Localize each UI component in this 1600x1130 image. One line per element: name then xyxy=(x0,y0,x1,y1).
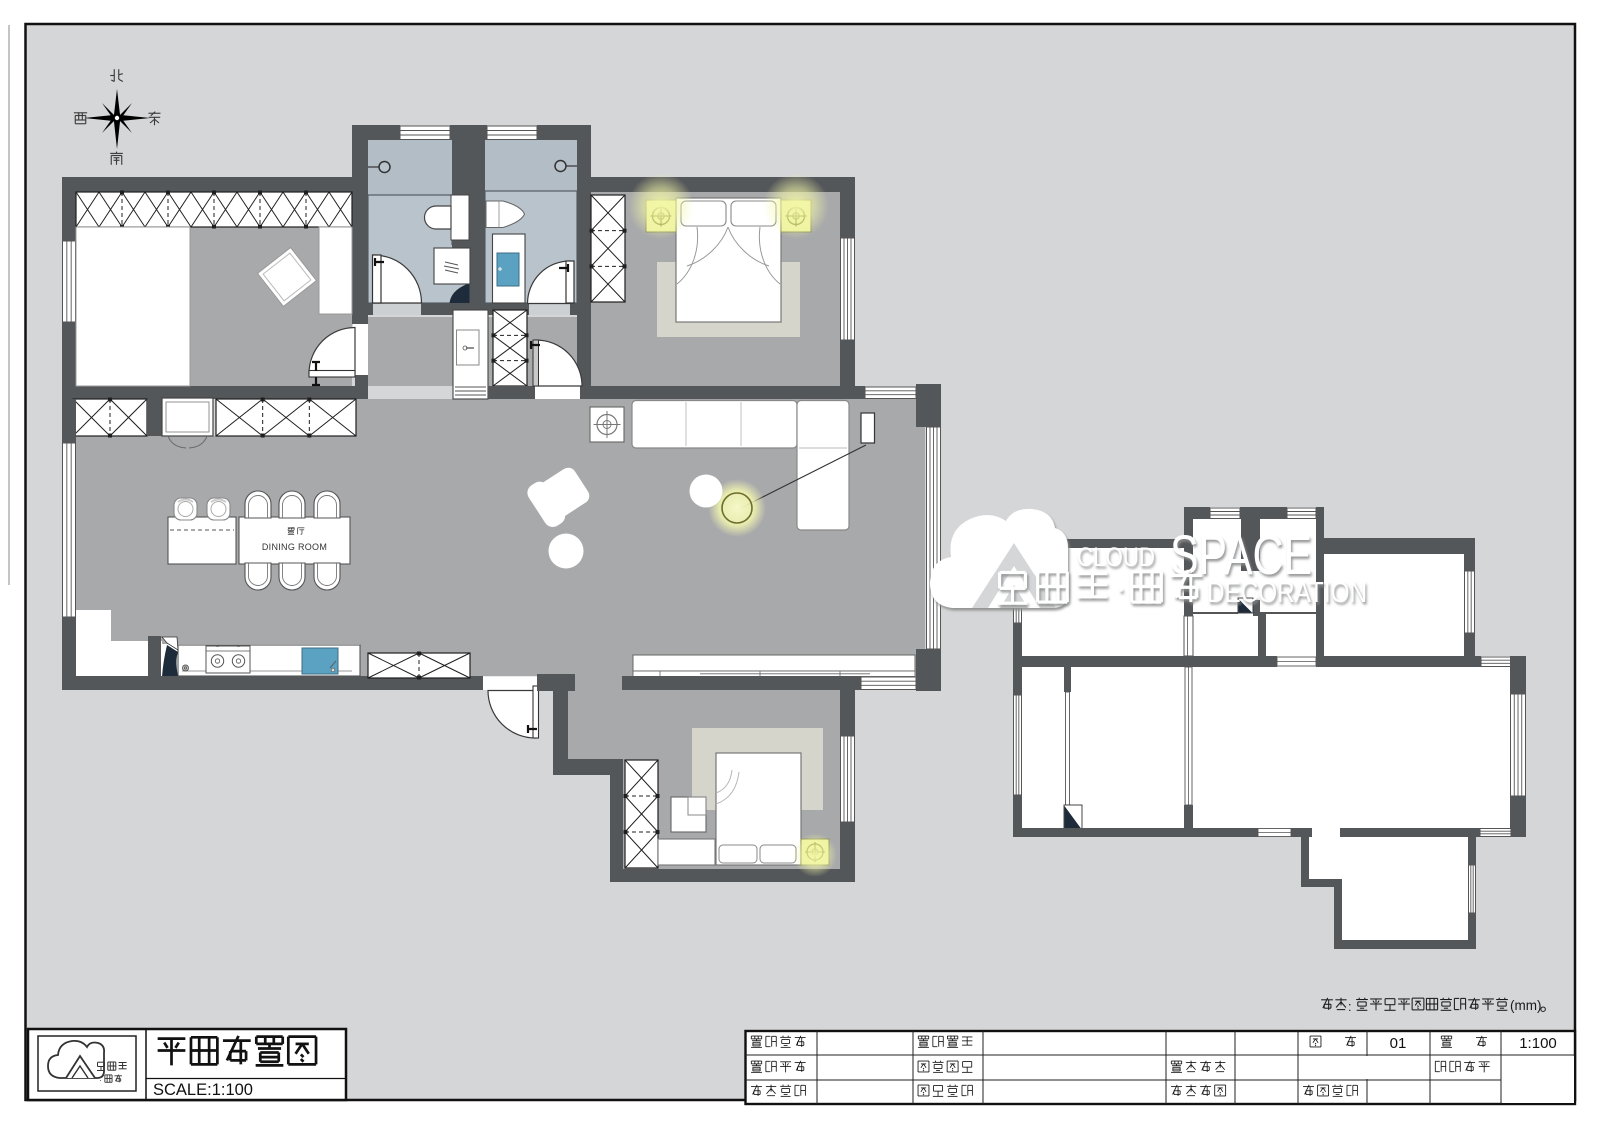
svg-text:CLOUD: CLOUD xyxy=(1077,542,1155,572)
svg-text:1:100: 1:100 xyxy=(1519,1035,1557,1052)
svg-text::: : xyxy=(1348,1000,1352,1014)
svg-text:DINING ROOM: DINING ROOM xyxy=(262,542,327,552)
svg-text:·: · xyxy=(1116,572,1126,605)
svg-text:DECORATION: DECORATION xyxy=(1207,577,1367,609)
svg-text:·: · xyxy=(99,1076,102,1085)
svg-text:01: 01 xyxy=(1390,1035,1407,1052)
svg-text:(mm): (mm) xyxy=(1510,998,1541,1013)
svg-text:SCALE:1:100: SCALE:1:100 xyxy=(153,1081,253,1099)
